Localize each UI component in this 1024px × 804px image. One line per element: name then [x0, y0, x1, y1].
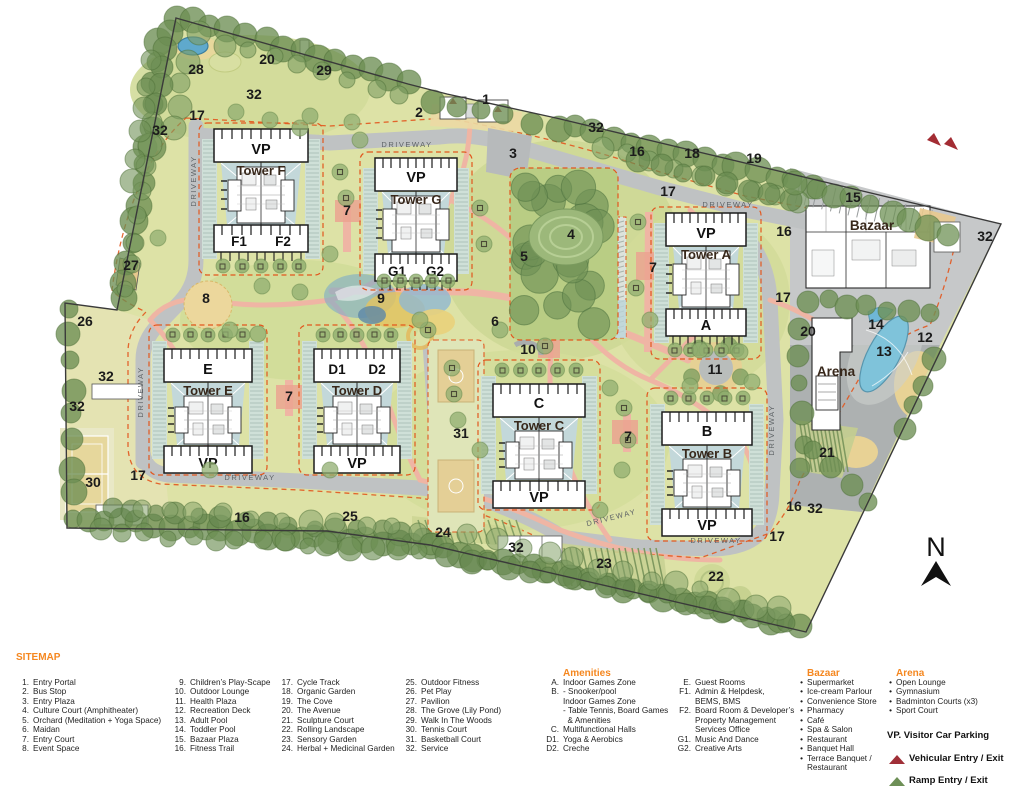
svg-text:13: 13 — [876, 343, 892, 359]
svg-text:26: 26 — [77, 313, 93, 329]
svg-text:16: 16 — [786, 498, 802, 514]
svg-text:7: 7 — [624, 428, 632, 444]
svg-text:18: 18 — [684, 145, 700, 161]
svg-text:VP: VP — [347, 456, 367, 472]
svg-text:21: 21 — [819, 444, 835, 460]
svg-text:28: 28 — [188, 61, 204, 77]
svg-text:20: 20 — [800, 323, 816, 339]
svg-text:E: E — [203, 362, 213, 378]
svg-text:29: 29 — [316, 62, 332, 78]
svg-text:B: B — [702, 424, 712, 440]
svg-text:4: 4 — [567, 226, 575, 242]
svg-text:6: 6 — [491, 313, 499, 329]
svg-text:A: A — [701, 318, 712, 334]
svg-text:C: C — [534, 396, 545, 412]
svg-text:1: 1 — [482, 91, 490, 107]
svg-text:17: 17 — [189, 107, 205, 123]
svg-text:F2: F2 — [275, 234, 291, 249]
svg-text:32: 32 — [977, 228, 993, 244]
svg-text:31: 31 — [453, 425, 469, 441]
svg-text:DRIVEWAY: DRIVEWAY — [381, 140, 432, 149]
svg-text:Arena: Arena — [817, 364, 856, 379]
svg-text:15: 15 — [845, 189, 861, 205]
svg-text:7: 7 — [649, 259, 657, 275]
svg-text:VP: VP — [251, 142, 271, 158]
svg-text:8: 8 — [202, 290, 210, 306]
svg-text:17: 17 — [769, 528, 785, 544]
svg-text:10: 10 — [520, 341, 536, 357]
svg-text:32: 32 — [508, 539, 524, 555]
svg-text:14: 14 — [868, 316, 884, 332]
svg-text:25: 25 — [342, 508, 358, 524]
svg-text:24: 24 — [435, 524, 451, 540]
svg-text:16: 16 — [629, 143, 645, 159]
svg-text:Tower C: Tower C — [514, 418, 565, 433]
svg-text:32: 32 — [69, 398, 85, 414]
svg-text:DRIVEWAY: DRIVEWAY — [690, 536, 741, 545]
svg-text:D2: D2 — [368, 362, 385, 377]
svg-text:F1: F1 — [231, 234, 247, 249]
svg-text:5: 5 — [520, 248, 528, 264]
svg-text:17: 17 — [130, 467, 146, 483]
svg-text:27: 27 — [123, 257, 139, 273]
svg-text:32: 32 — [588, 119, 604, 135]
svg-text:VP: VP — [529, 490, 549, 506]
svg-text:DRIVEWAY: DRIVEWAY — [224, 473, 275, 482]
svg-text:DRIVEWAY: DRIVEWAY — [136, 366, 145, 417]
svg-text:20: 20 — [259, 51, 275, 67]
svg-text:VP: VP — [406, 170, 426, 186]
svg-text:DRIVEWAY: DRIVEWAY — [702, 200, 753, 209]
svg-text:DRIVEWAY: DRIVEWAY — [189, 155, 198, 206]
svg-text:23: 23 — [596, 555, 612, 571]
svg-text:16: 16 — [234, 509, 250, 525]
svg-text:D1: D1 — [328, 362, 346, 377]
svg-text:Tower F: Tower F — [237, 163, 286, 178]
svg-text:Tower G: Tower G — [390, 192, 441, 207]
svg-text:16: 16 — [776, 223, 792, 239]
svg-text:11: 11 — [708, 361, 723, 377]
svg-text:N: N — [926, 532, 946, 562]
svg-text:3: 3 — [509, 145, 517, 161]
svg-text:Tower D: Tower D — [332, 383, 382, 398]
svg-text:32: 32 — [152, 122, 168, 138]
svg-text:VP: VP — [697, 518, 717, 534]
svg-text:17: 17 — [775, 289, 791, 305]
svg-text:VP: VP — [696, 226, 716, 242]
svg-text:Tower E: Tower E — [183, 383, 233, 398]
svg-text:Bazaar: Bazaar — [850, 218, 895, 233]
svg-text:7: 7 — [285, 388, 293, 404]
svg-text:30: 30 — [85, 474, 101, 490]
svg-text:Tower B: Tower B — [682, 446, 732, 461]
svg-text:9: 9 — [377, 290, 385, 306]
svg-text:12: 12 — [917, 329, 933, 345]
svg-text:2: 2 — [415, 104, 423, 120]
svg-text:DRIVEWAY: DRIVEWAY — [767, 404, 776, 455]
svg-text:Tower A: Tower A — [681, 247, 731, 262]
svg-text:19: 19 — [746, 150, 762, 166]
svg-text:17: 17 — [660, 183, 676, 199]
svg-text:22: 22 — [708, 568, 724, 584]
svg-text:32: 32 — [246, 86, 262, 102]
svg-text:7: 7 — [343, 202, 351, 218]
svg-text:32: 32 — [807, 500, 823, 516]
svg-text:32: 32 — [98, 368, 114, 384]
